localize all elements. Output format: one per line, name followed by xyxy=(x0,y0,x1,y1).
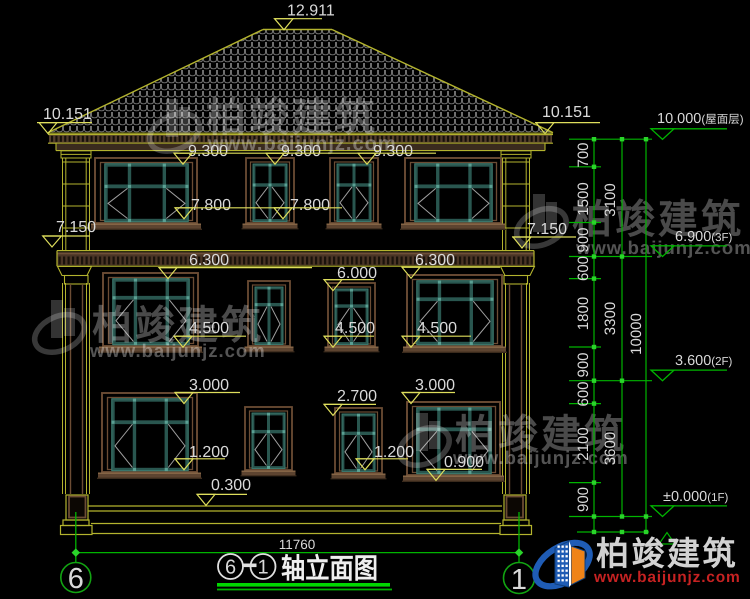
svg-text:10.151: 10.151 xyxy=(43,106,92,123)
svg-text:3100: 3100 xyxy=(602,183,619,216)
svg-text:1: 1 xyxy=(511,564,527,596)
svg-text:3.600(2F): 3.600(2F) xyxy=(675,353,733,369)
svg-text:7.800: 7.800 xyxy=(290,197,330,214)
svg-text:6: 6 xyxy=(225,557,236,579)
svg-text:10.000(屋面层): 10.000(屋面层) xyxy=(657,111,744,127)
svg-text:900: 900 xyxy=(575,227,592,252)
svg-text:9.300: 9.300 xyxy=(281,143,321,160)
svg-text:0.900: 0.900 xyxy=(444,454,484,471)
svg-text:轴立面图: 轴立面图 xyxy=(281,553,378,584)
svg-text:12.911: 12.911 xyxy=(287,3,335,20)
svg-text:600: 600 xyxy=(575,256,592,281)
svg-text:1: 1 xyxy=(257,557,268,579)
svg-text:2.700: 2.700 xyxy=(337,388,377,405)
svg-text:7.800: 7.800 xyxy=(191,197,231,214)
svg-text:www.baijunjz.com: www.baijunjz.com xyxy=(593,569,741,586)
svg-text:3.000: 3.000 xyxy=(189,377,229,394)
svg-text:6.900(3F): 6.900(3F) xyxy=(675,229,733,245)
svg-text:900: 900 xyxy=(575,352,592,377)
svg-text:6: 6 xyxy=(68,563,84,595)
svg-text:900: 900 xyxy=(575,487,592,512)
svg-text:600: 600 xyxy=(575,381,592,406)
svg-text:6.300: 6.300 xyxy=(415,252,455,269)
svg-text:9.300: 9.300 xyxy=(188,143,228,160)
svg-text:7.150: 7.150 xyxy=(56,219,96,236)
svg-text:3.000: 3.000 xyxy=(415,377,455,394)
svg-text:±0.000(1F): ±0.000(1F) xyxy=(663,489,729,505)
svg-text:10.151: 10.151 xyxy=(542,104,591,121)
svg-text:2100: 2100 xyxy=(575,427,592,460)
svg-text:11760: 11760 xyxy=(279,537,316,552)
svg-text:www.baijunjz.com: www.baijunjz.com xyxy=(89,340,266,361)
svg-text:4.500: 4.500 xyxy=(189,320,229,337)
svg-text:0.300: 0.300 xyxy=(211,477,251,494)
svg-text:9.300: 9.300 xyxy=(373,143,413,160)
svg-text:4.500: 4.500 xyxy=(417,320,457,337)
svg-text:10000: 10000 xyxy=(628,313,645,355)
svg-text:1800: 1800 xyxy=(575,297,592,330)
svg-text:3600: 3600 xyxy=(602,432,619,465)
svg-text:3300: 3300 xyxy=(602,302,619,335)
svg-text:700: 700 xyxy=(575,142,592,167)
svg-text:1500: 1500 xyxy=(575,182,592,215)
svg-text:柏竣建筑: 柏竣建筑 xyxy=(596,535,738,572)
svg-text:7.150: 7.150 xyxy=(527,221,567,238)
svg-text:6.300: 6.300 xyxy=(189,252,229,269)
svg-text:4.500: 4.500 xyxy=(335,320,375,337)
